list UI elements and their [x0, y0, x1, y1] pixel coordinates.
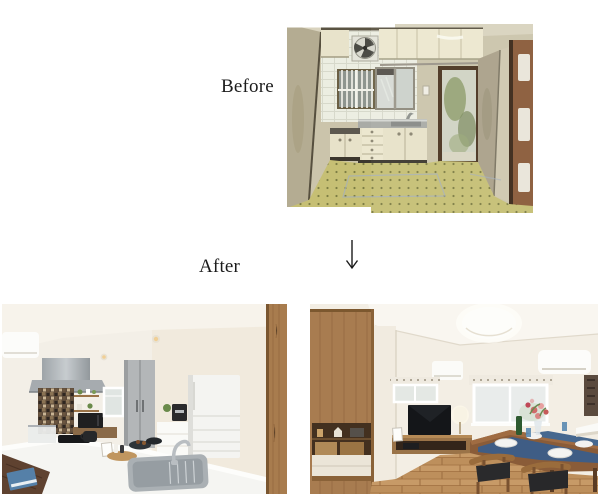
before-label: Before: [221, 77, 274, 97]
wall-art: [584, 375, 598, 416]
tv: [408, 405, 451, 437]
kettle: [81, 431, 97, 442]
ceiling-light: [456, 304, 522, 343]
side-counter: [330, 128, 360, 161]
bottle: [516, 416, 522, 435]
after-living-photo: [310, 304, 598, 494]
downlight: [154, 337, 158, 341]
photo-frame: [393, 428, 403, 442]
after-label: After: [199, 257, 240, 277]
before-photo: [287, 24, 533, 213]
downlight: [102, 355, 106, 359]
down-arrow-icon: [343, 238, 361, 279]
air-conditioner-right: [538, 350, 591, 374]
refrigerator: [188, 375, 240, 458]
air-conditioner: [2, 332, 39, 358]
stitch-edge-bottom: [287, 207, 371, 213]
kitchen-window: [104, 388, 123, 416]
barred-window: [338, 70, 374, 108]
after-kitchen-photo: [2, 304, 287, 494]
wood-pillar: [266, 304, 287, 494]
before-after-comparison: Before After: [0, 0, 600, 499]
small-window: [390, 377, 440, 402]
corner-wall: [374, 326, 396, 491]
large-window: [469, 375, 553, 426]
tall-cabinet: [124, 360, 155, 448]
wood-shelf-cabinet: [310, 309, 374, 494]
